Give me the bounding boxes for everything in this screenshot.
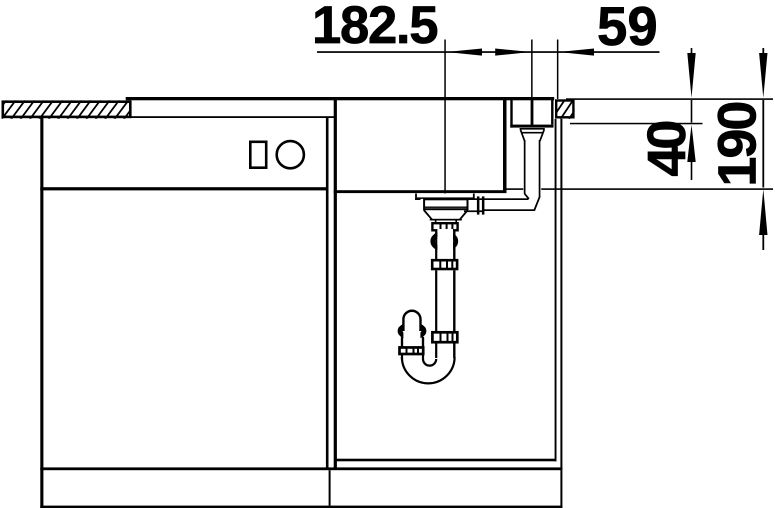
svg-text:190: 190 [708, 101, 768, 187]
svg-text:182.5: 182.5 [312, 0, 437, 55]
svg-text:40: 40 [637, 122, 697, 177]
svg-text:59: 59 [597, 0, 658, 57]
